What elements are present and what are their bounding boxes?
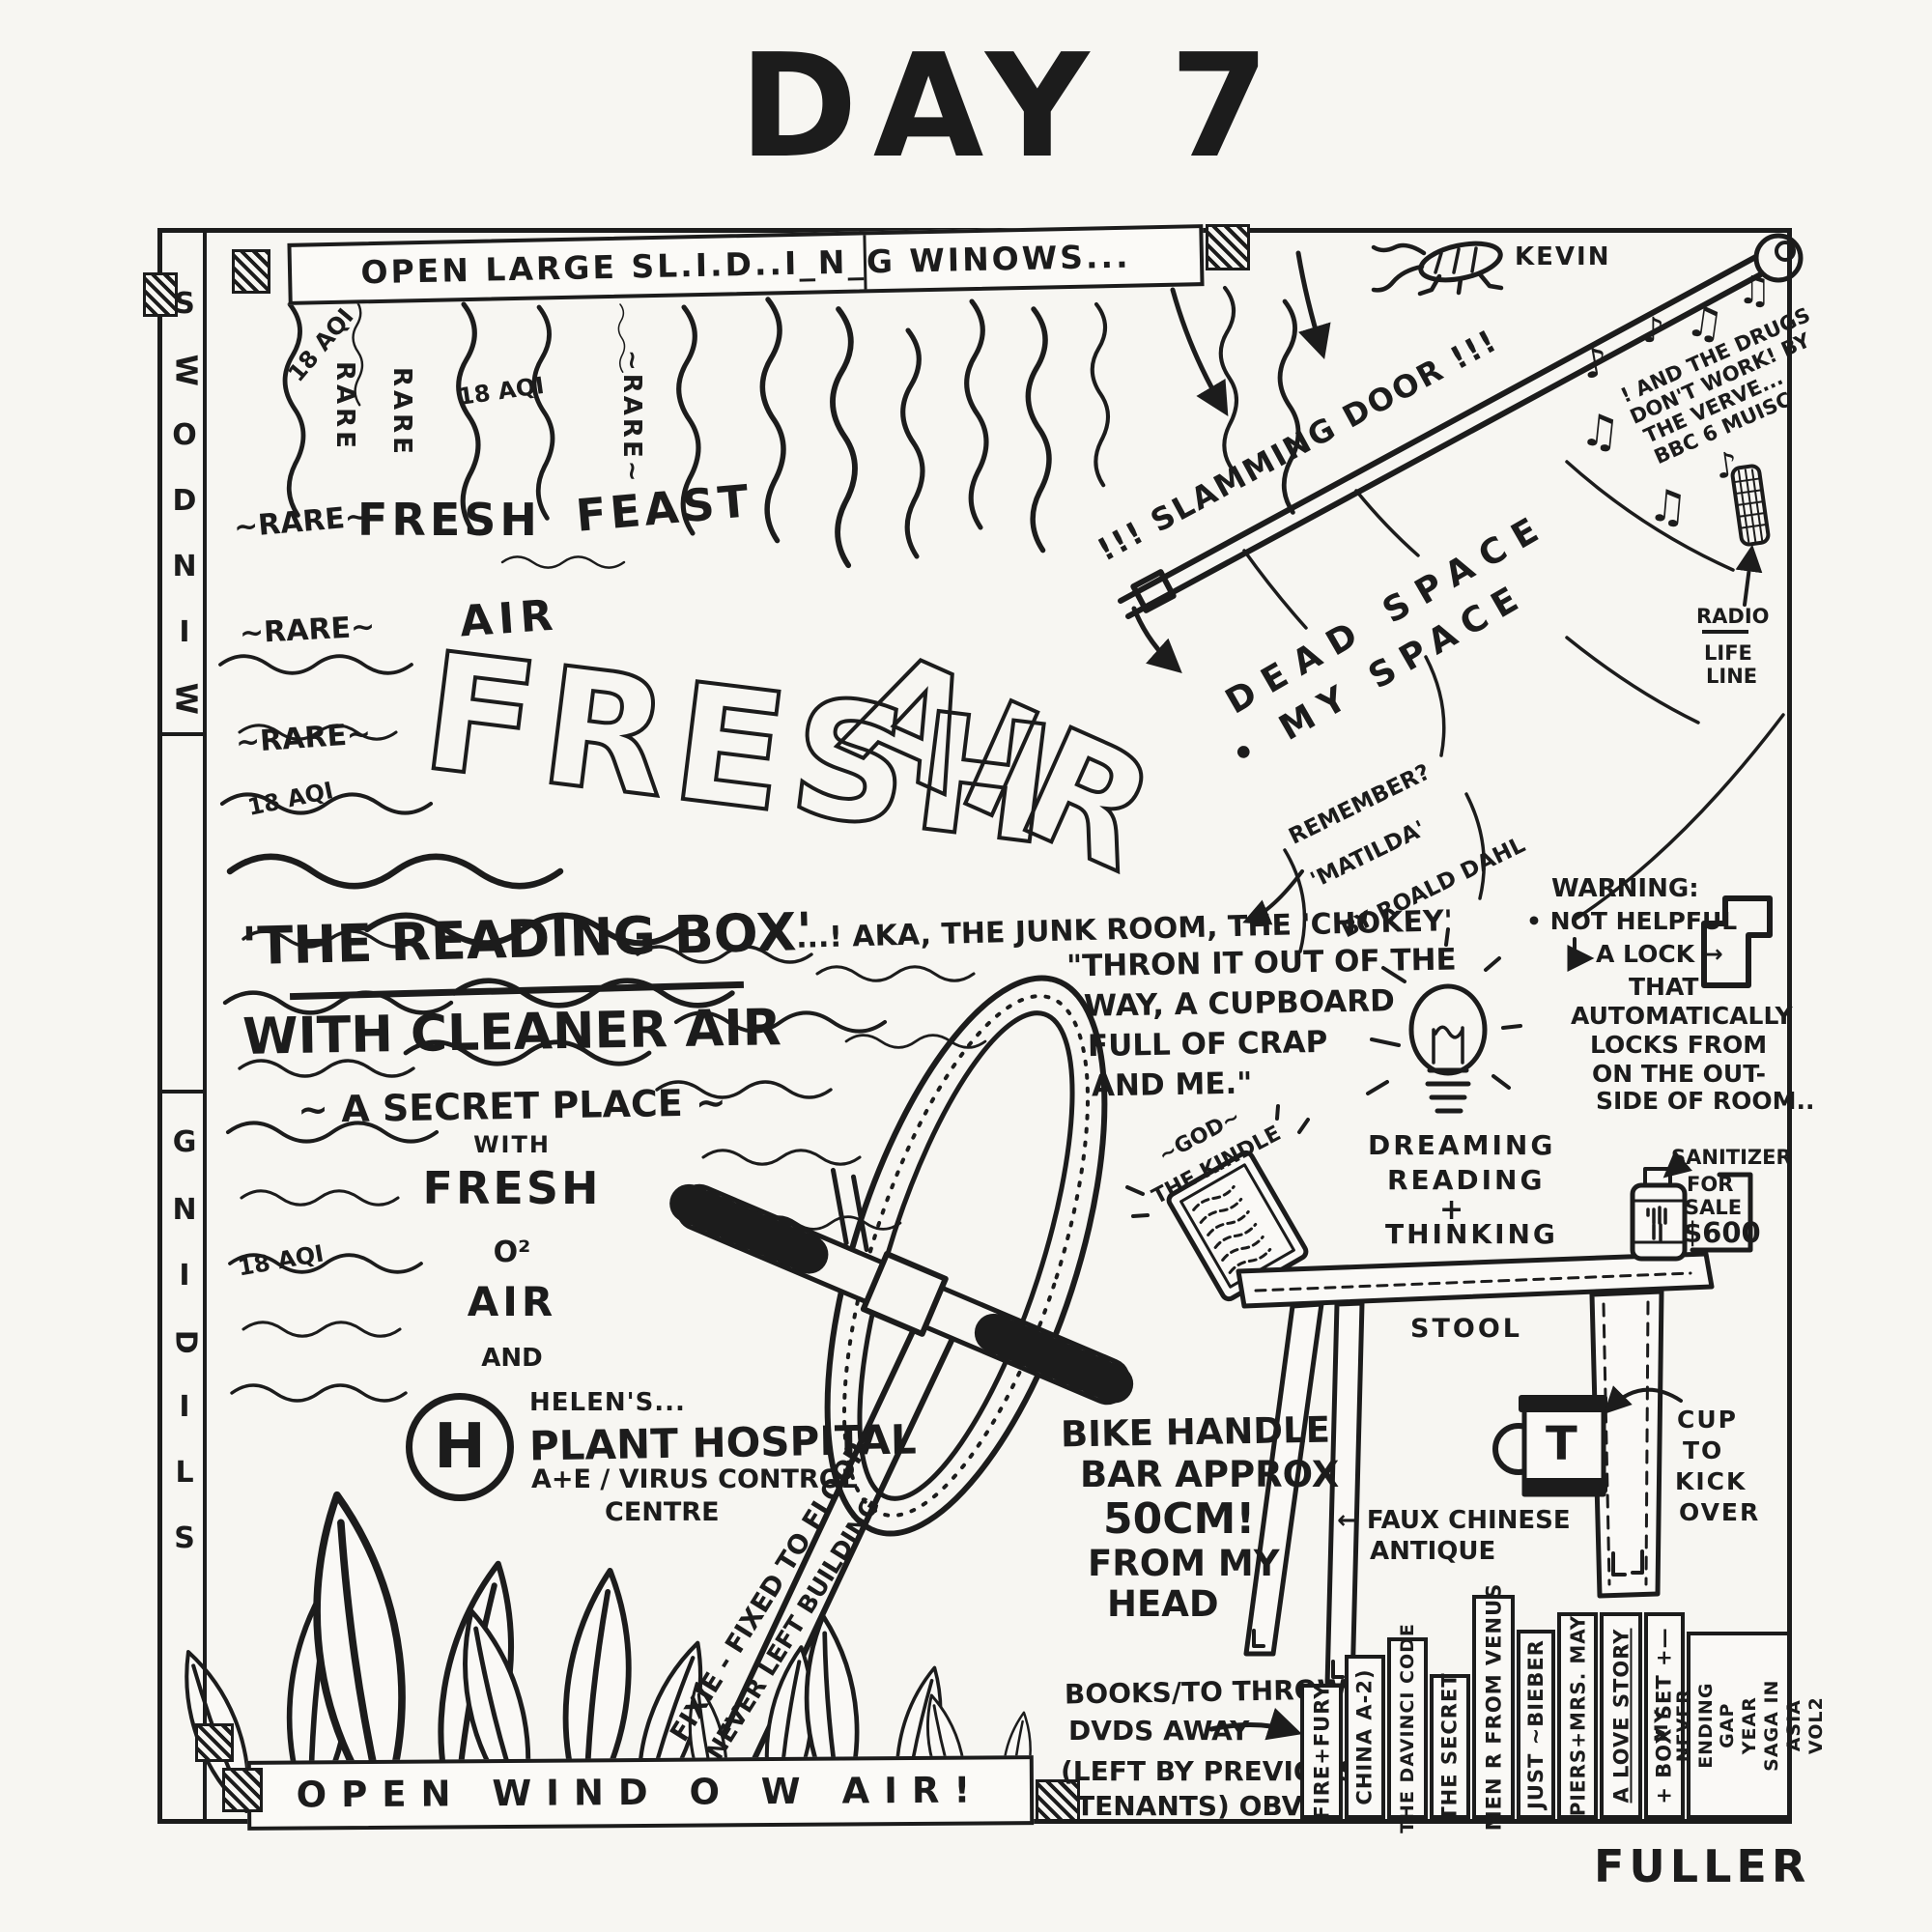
- window-letter: D: [164, 485, 205, 519]
- music-note-icon: ♫: [1577, 404, 1623, 459]
- book-spine-label: THE DAVINCI CODE: [1397, 1623, 1418, 1833]
- cup-note-line: CUP: [1677, 1406, 1738, 1435]
- page-title: DAY 7: [739, 24, 1285, 188]
- warning-line: WARNING:: [1551, 875, 1699, 904]
- hatch-mark: [222, 1768, 263, 1812]
- faux-antique-label: ← FAUX CHINESE: [1337, 1507, 1571, 1536]
- book-spine-label: PIERS+MRS. MAY: [1566, 1615, 1589, 1817]
- window-letter: I: [164, 1260, 205, 1293]
- stool-label: STOOL: [1410, 1314, 1522, 1344]
- rare-label: ~RARE~: [239, 611, 376, 651]
- cup-note-line: TO: [1683, 1437, 1723, 1465]
- faux-antique-label: ANTIQUE: [1370, 1538, 1495, 1567]
- artist-signature: FULLER: [1594, 1841, 1810, 1892]
- hatch-mark: [232, 249, 270, 294]
- window-letter: G: [164, 1126, 205, 1160]
- window-letter: N: [164, 1194, 205, 1228]
- book-spine-label: A LOVE STORY: [1609, 1629, 1633, 1804]
- top-banner-label: OPEN LARGE SL.I.D..I_N_G WINOWS...: [360, 239, 1131, 292]
- sanitizer-label: SANITIZER: [1671, 1146, 1792, 1169]
- music-note-icon: ♫: [1737, 269, 1772, 313]
- hospital-dept-label: A+E / VIRUS CONTROL: [531, 1464, 858, 1494]
- h-letter: H: [434, 1411, 486, 1483]
- hospital-centre-label: CENTRE: [605, 1497, 720, 1527]
- cup-note-line: KICK: [1675, 1468, 1747, 1496]
- radio-label: LIFE: [1704, 641, 1752, 665]
- bike-note-line: 50CM!: [1103, 1495, 1255, 1545]
- window-letter: I: [164, 1391, 205, 1425]
- bottom-banner-label: OPEN WIND O W AIR!: [297, 1770, 985, 1816]
- book-spine: JUST ~BIEBER: [1517, 1630, 1555, 1819]
- book-spine-label: MEN R FROM VENUS: [1482, 1583, 1505, 1832]
- ideas-line: DREAMING: [1368, 1130, 1555, 1161]
- book-spine: FIRE+FURY: [1300, 1684, 1343, 1819]
- fresh-label: FRESH: [241, 1163, 782, 1214]
- window-letter: W: [168, 678, 202, 719]
- quote-line: AND ME.": [1092, 1067, 1253, 1105]
- warning-line: AUTOMATICALLY: [1571, 1003, 1793, 1031]
- window-letter: L: [164, 1457, 205, 1491]
- fresh-label: FRESH: [357, 495, 541, 546]
- window-letter: W: [168, 350, 202, 390]
- window-letter: S: [164, 1522, 205, 1556]
- radio-label: LINE: [1706, 665, 1757, 688]
- music-note-icon: ♫: [1646, 479, 1690, 533]
- hatch-mark: [1206, 224, 1250, 270]
- reading-box-subtitle: WITH CLEANER AIR: [241, 1000, 783, 1067]
- book-spine: MEN R FROM VENUS: [1472, 1595, 1515, 1819]
- warning-line: A LOCK →: [1596, 941, 1723, 969]
- book-spine-label: FIRE+FURY: [1310, 1684, 1333, 1820]
- hatch-mark: [195, 1723, 234, 1762]
- cup-letter: T: [1546, 1418, 1577, 1471]
- and-label: AND: [241, 1345, 782, 1374]
- bike-note-line: FROM MY: [1088, 1544, 1280, 1585]
- music-note-icon: ♪: [1642, 311, 1664, 351]
- bike-note-line: BAR APPROX: [1080, 1455, 1339, 1496]
- warning-line: ON THE OUT-: [1592, 1061, 1766, 1089]
- bike-note-line: HEAD: [1107, 1584, 1219, 1626]
- ideas-line: READING: [1387, 1165, 1545, 1196]
- books-note-line: DVDS AWAY: [1068, 1716, 1249, 1747]
- sanitizer-price: $600: [1683, 1217, 1761, 1249]
- bike-note-line: BIKE HANDLE: [1061, 1410, 1331, 1456]
- book-spine-label: CHINA A-2): [1353, 1668, 1377, 1804]
- quote-line: FULL OF CRAP: [1088, 1026, 1328, 1065]
- day7-drawing-page: { "page": { "title": "DAY 7", "signature…: [0, 0, 1932, 1932]
- sliding-window-strip: [162, 233, 207, 1819]
- book-spine: MY NEVER ENDING GAP YEAR SAGA IN ASIA VO…: [1687, 1632, 1791, 1819]
- rare-label: RARE: [386, 367, 415, 458]
- warning-line: LOCKS FROM: [1590, 1032, 1767, 1060]
- rare-label: RARE: [329, 361, 358, 452]
- window-letter: N: [164, 551, 205, 584]
- quote-line: "THRON IT OUT OF THE: [1066, 943, 1457, 984]
- book-spine-label: JUST ~BIEBER: [1524, 1639, 1548, 1809]
- window-strip-tick: [162, 1090, 207, 1094]
- window-letter: I: [164, 616, 205, 650]
- hospital-h-badge: H: [406, 1393, 514, 1501]
- book-spine-label: MY NEVER ENDING GAP YEAR SAGA IN ASIA VO…: [1651, 1677, 1827, 1774]
- window-letter: O: [164, 419, 205, 453]
- book-spine: THE DAVINCI CODE: [1387, 1637, 1428, 1819]
- rare-label: ~RARE~: [616, 350, 645, 485]
- warning-line: • NOT HELPFUL: [1526, 908, 1737, 936]
- radio-label: RADIO: [1696, 605, 1770, 628]
- book-spine: PIERS+MRS. MAY: [1557, 1612, 1598, 1819]
- music-note-icon: ♫: [1683, 298, 1727, 352]
- air-label: AIR: [241, 1279, 782, 1325]
- window-letter: D: [168, 1321, 202, 1362]
- radio-underline: [1702, 630, 1748, 634]
- helens-label: HELEN'S...: [529, 1389, 686, 1418]
- sanitizer-label: FOR: [1687, 1173, 1733, 1196]
- o2-label: O²: [241, 1236, 782, 1270]
- with-label: WITH: [241, 1132, 782, 1159]
- bottom-window-banner: OPEN WIND O W AIR!: [247, 1755, 1034, 1831]
- book-spine: A LOVE STORY: [1600, 1612, 1642, 1819]
- kevin-label: KEVIN: [1515, 243, 1610, 272]
- ideas-line: THINKING: [1385, 1219, 1558, 1250]
- cup-note-line: OVER: [1679, 1499, 1760, 1527]
- warning-line: THAT: [1629, 974, 1698, 1002]
- hatch-mark: [143, 272, 178, 317]
- window-strip-tick: [162, 732, 207, 736]
- book-spine: CHINA A-2): [1345, 1655, 1385, 1819]
- books-note-line: TENANTS) OBVS.: [1076, 1791, 1332, 1822]
- book-spine: THE SECRET: [1430, 1674, 1470, 1819]
- quote-line: WAY, A CUPBOARD: [1084, 984, 1395, 1024]
- warning-line: SIDE OF ROOM..: [1596, 1088, 1815, 1116]
- book-spine-label: THE SECRET: [1438, 1672, 1462, 1820]
